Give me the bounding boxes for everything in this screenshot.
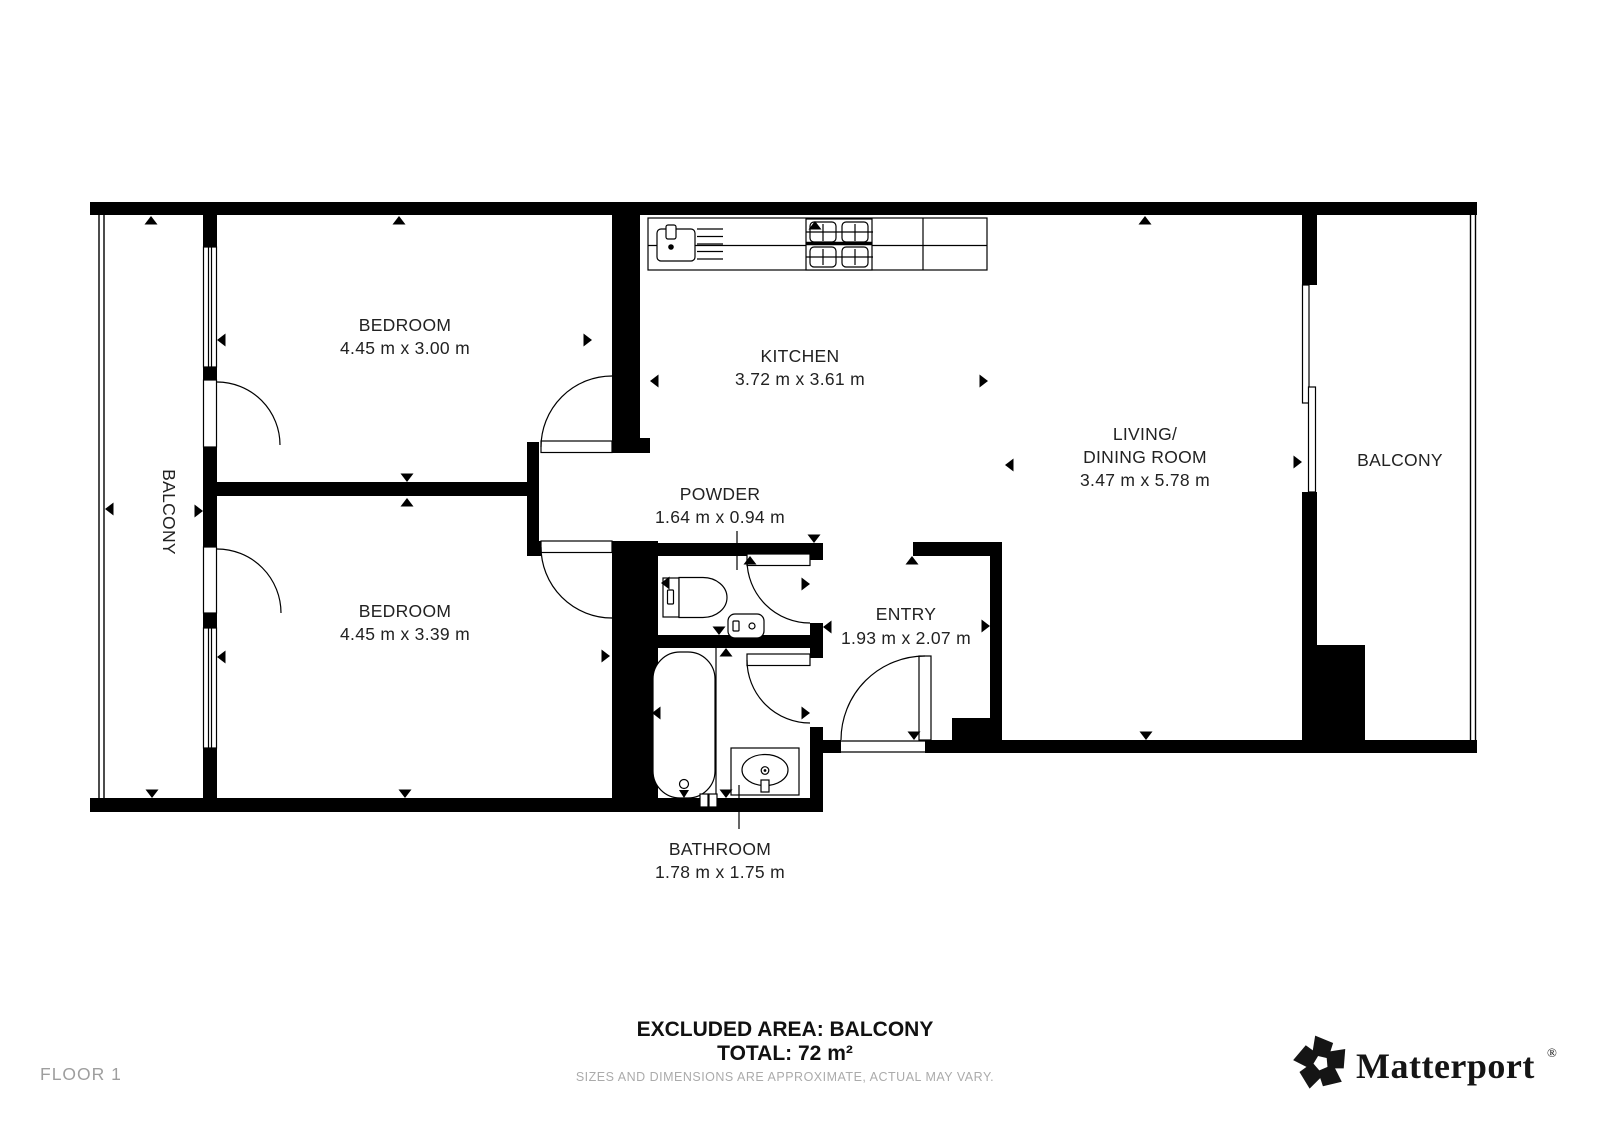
floorplan-svg: BEDROOM 4.45 m x 3.00 m KITCHEN 3.72 m x… (0, 0, 1600, 1132)
bathroom-label: BATHROOM (669, 839, 771, 859)
arrow-right-icon (602, 650, 611, 663)
arrow-up-icon (720, 648, 733, 657)
arrow-left-icon (217, 334, 226, 347)
kitchen-dimensions: 3.72 m x 3.61 m (735, 369, 865, 389)
arrow-right-icon (584, 334, 593, 347)
arrow-down-icon (399, 790, 412, 799)
bedroom1-label: BEDROOM (359, 315, 452, 335)
excluded-area-note: EXCLUDED AREA: BALCONY (637, 1018, 934, 1041)
arrow-down-icon (146, 790, 159, 799)
kitchen-label: KITCHEN (761, 346, 840, 366)
arrow-right-icon (1294, 456, 1303, 469)
arrow-up-icon (393, 216, 406, 225)
kitchen-sink-icon (657, 225, 695, 261)
balcony-railings (99, 215, 1476, 798)
door-powder (747, 554, 823, 623)
door-entry (841, 656, 931, 753)
powder-sink-icon (728, 614, 764, 638)
door-bedroom2-balcony (204, 547, 282, 613)
powder-fixtures (663, 578, 764, 639)
arrow-right-icon (982, 620, 991, 633)
bathroom-sink-icon (731, 748, 799, 795)
living-label-line2: DINING ROOM (1083, 447, 1207, 467)
footer: EXCLUDED AREA: BALCONY TOTAL: 72 m² SIZE… (40, 1018, 1557, 1100)
railing-left (99, 215, 104, 798)
sliding-door-panel-2 (1309, 387, 1316, 492)
bedroom1-dimensions: 4.45 m x 3.00 m (340, 338, 470, 358)
living-label-line1: LIVING/ (1113, 424, 1177, 444)
toilet-icon (663, 578, 727, 618)
arrow-right-icon (195, 505, 204, 518)
railing-right (1471, 215, 1476, 740)
wall-shaft-block (1302, 645, 1365, 740)
matterport-pinwheel-icon (1286, 1029, 1358, 1100)
arrow-right-icon (802, 707, 811, 720)
arrow-left-icon (650, 375, 659, 388)
matterport-logo: Matterport ® (1286, 1029, 1557, 1100)
arrow-right-icon (980, 375, 989, 388)
sliding-door-panel-1 (1303, 285, 1310, 403)
floor-label: FLOOR 1 (40, 1064, 122, 1084)
powder-label: POWDER (680, 484, 761, 504)
arrow-left-icon (105, 503, 114, 516)
powder-dimensions: 1.64 m x 0.94 m (655, 507, 785, 527)
living-dimensions: 3.47 m x 5.78 m (1080, 470, 1210, 490)
bathtub-icon (653, 648, 717, 807)
arrow-down-icon (808, 535, 821, 544)
arrow-down-icon (713, 627, 726, 636)
bathroom-dimensions: 1.78 m x 1.75 m (655, 862, 785, 882)
matterport-wordmark: Matterport (1356, 1046, 1535, 1086)
door-bedroom1-balcony (204, 380, 281, 447)
arrow-left-icon (217, 651, 226, 664)
door-bedroom1 (541, 376, 612, 453)
wall-bedroom-divider (203, 482, 527, 496)
arrow-up-icon (1139, 216, 1152, 225)
arrow-down-icon (401, 474, 414, 483)
arrow-up-icon (401, 498, 414, 507)
arrow-right-icon (802, 578, 811, 591)
balcony-right-label: BALCONY (1357, 450, 1443, 470)
bathroom-fixtures (653, 648, 799, 807)
balcony-left-label: BALCONY (159, 469, 179, 555)
door-bathroom (747, 654, 823, 723)
doors (204, 376, 932, 753)
arrow-left-icon (823, 621, 832, 634)
room-labels: BEDROOM 4.45 m x 3.00 m KITCHEN 3.72 m x… (159, 315, 1443, 882)
registered-mark: ® (1547, 1045, 1557, 1060)
arrow-up-icon (906, 556, 919, 565)
window-bedroom2 (204, 628, 217, 748)
arrow-down-icon (1140, 732, 1153, 741)
arrow-left-icon (1005, 459, 1014, 472)
disclaimer: SIZES AND DIMENSIONS ARE APPROXIMATE, AC… (576, 1070, 994, 1084)
entry-dimensions: 1.93 m x 2.07 m (841, 628, 971, 648)
entry-label: ENTRY (876, 604, 937, 624)
total-area: TOTAL: 72 m² (717, 1042, 853, 1065)
bedroom2-label: BEDROOM (359, 601, 452, 621)
window-bedroom1 (204, 247, 217, 367)
bedroom2-dimensions: 4.45 m x 3.39 m (340, 624, 470, 644)
floorplan-page: BEDROOM 4.45 m x 3.00 m KITCHEN 3.72 m x… (0, 0, 1600, 1132)
door-bedroom2 (541, 541, 612, 618)
wall-top (90, 202, 1477, 215)
arrow-up-icon (145, 216, 158, 225)
